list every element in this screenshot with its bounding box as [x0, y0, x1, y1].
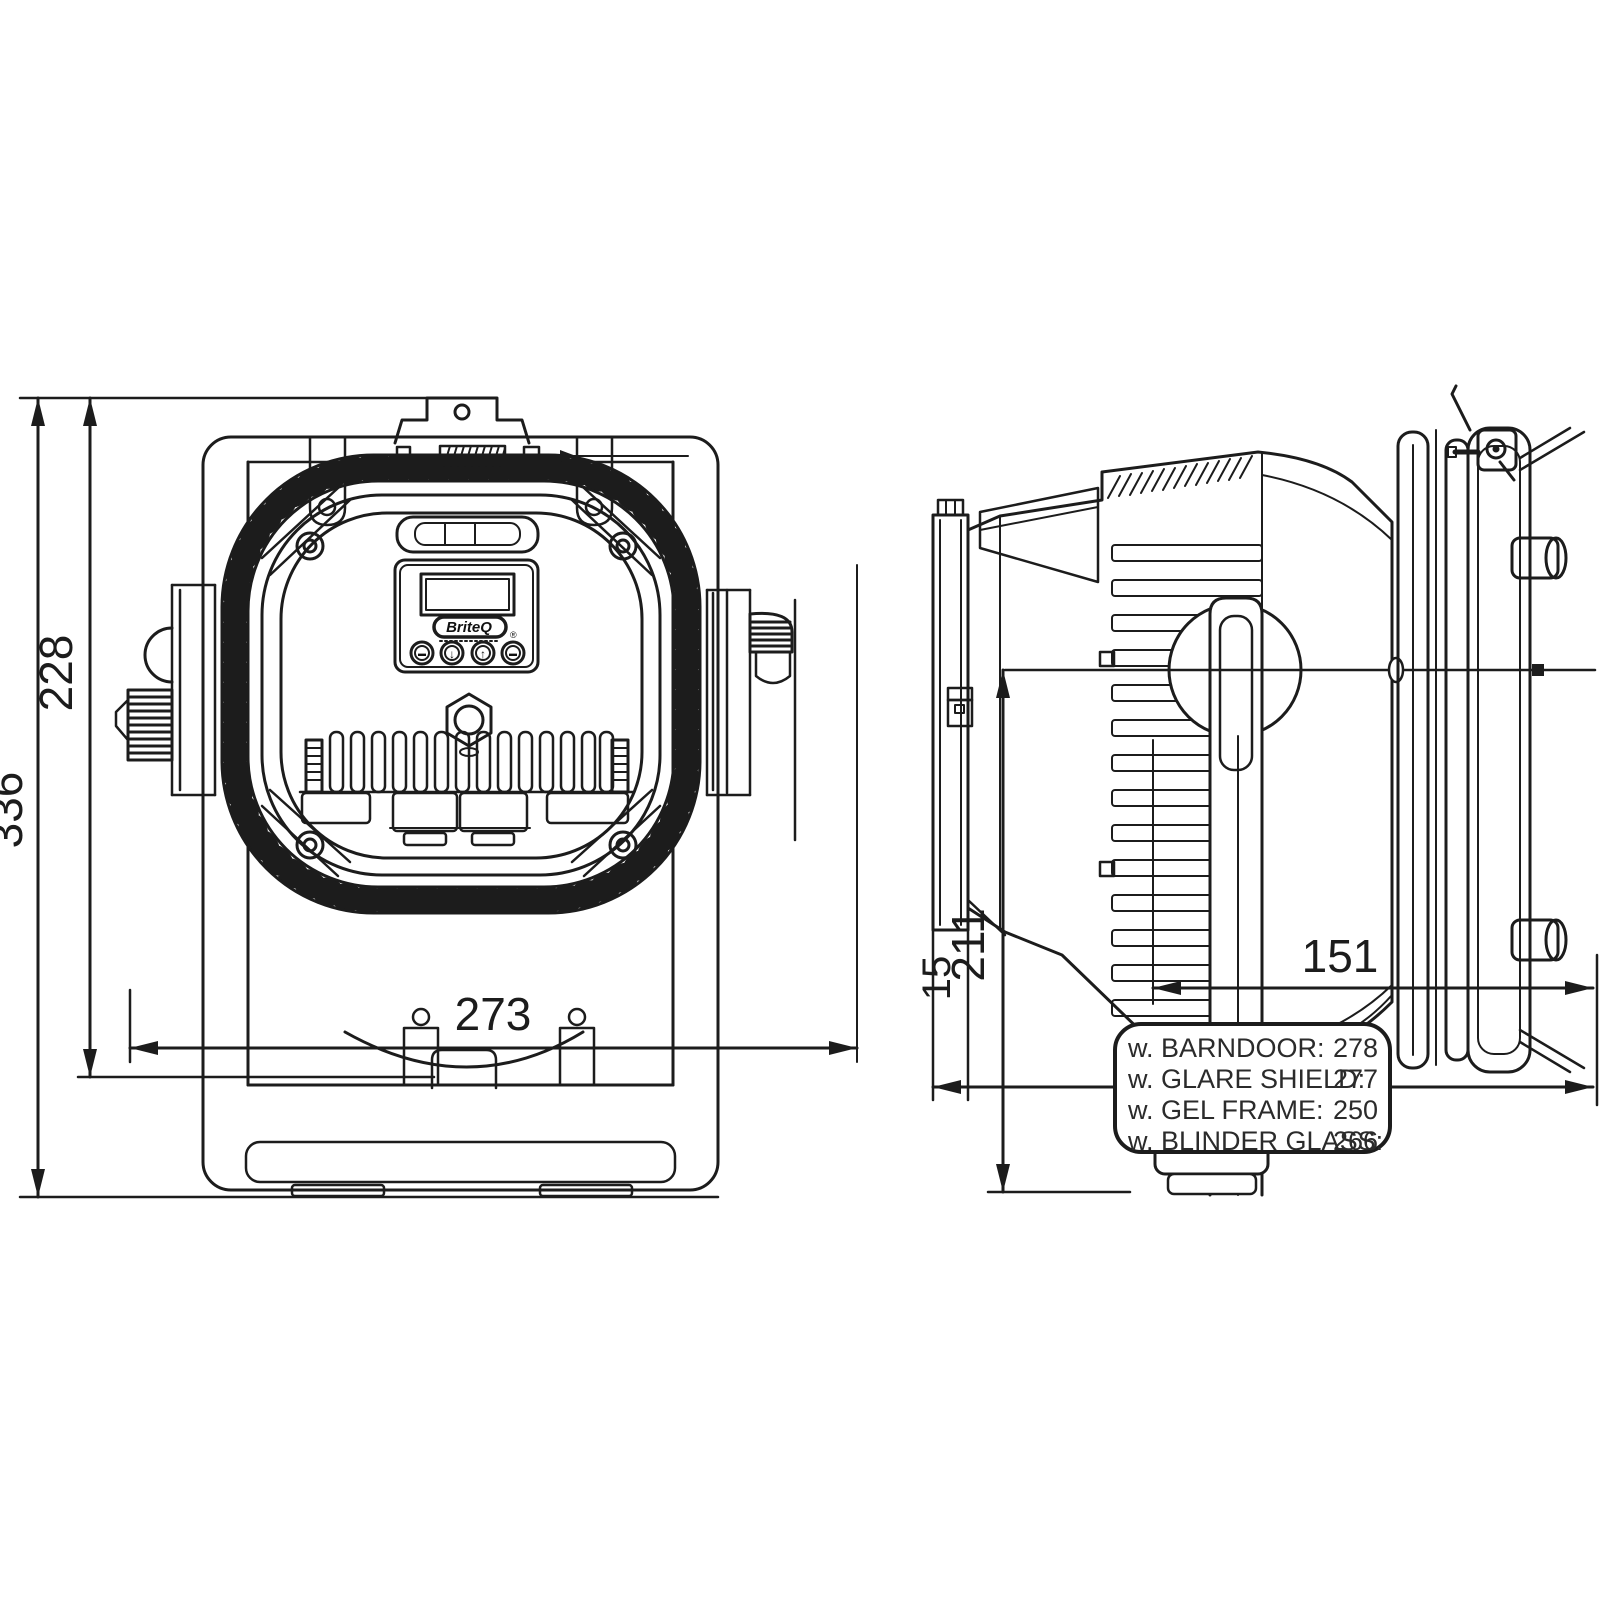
technical-drawing-page: 336 228 273 15 211 151 w. BARNDOOR: 278 … — [0, 0, 1600, 1600]
dimension-drawing: 336 228 273 15 211 151 w. BARNDOOR: 278 … — [0, 0, 1600, 1600]
down-arrow-icon: ↓ — [449, 647, 455, 661]
dim-label-211: 211 — [942, 908, 994, 981]
enter-button-icon: ▬ — [509, 649, 517, 658]
dim-label-336: 336 — [0, 772, 32, 849]
spec-row-label: w. GEL FRAME: — [1127, 1095, 1324, 1125]
tilt-knob-right — [707, 590, 795, 840]
spec-row-label: w. BARNDOOR: — [1127, 1033, 1325, 1063]
spec-row-label: w. GLARE SHIELD: — [1127, 1064, 1365, 1094]
dim-label-151: 151 — [1302, 930, 1379, 982]
safety-clip — [1448, 386, 1516, 480]
spec-row-value: 250 — [1333, 1095, 1378, 1125]
brand-logo-text: BriteQ — [446, 619, 492, 636]
dimension-211 — [988, 670, 1130, 1192]
registered-mark: ® — [510, 630, 517, 640]
front-frame-assembly — [1398, 386, 1584, 1072]
top-bracket — [395, 398, 688, 466]
dim-label-228: 228 — [30, 635, 82, 712]
spec-table: w. BARNDOOR: 278 w. GLARE SHIELD: 277 w.… — [1127, 1033, 1383, 1156]
spec-row-value: 266 — [1333, 1126, 1378, 1156]
up-arrow-icon: ↑ — [480, 647, 486, 661]
dim-label-273: 273 — [455, 988, 532, 1040]
spec-row-value: 277 — [1333, 1064, 1378, 1094]
tilt-knob-left — [116, 585, 215, 795]
menu-button-icon: ▬ — [418, 649, 426, 658]
spec-row-value: 278 — [1333, 1033, 1378, 1063]
